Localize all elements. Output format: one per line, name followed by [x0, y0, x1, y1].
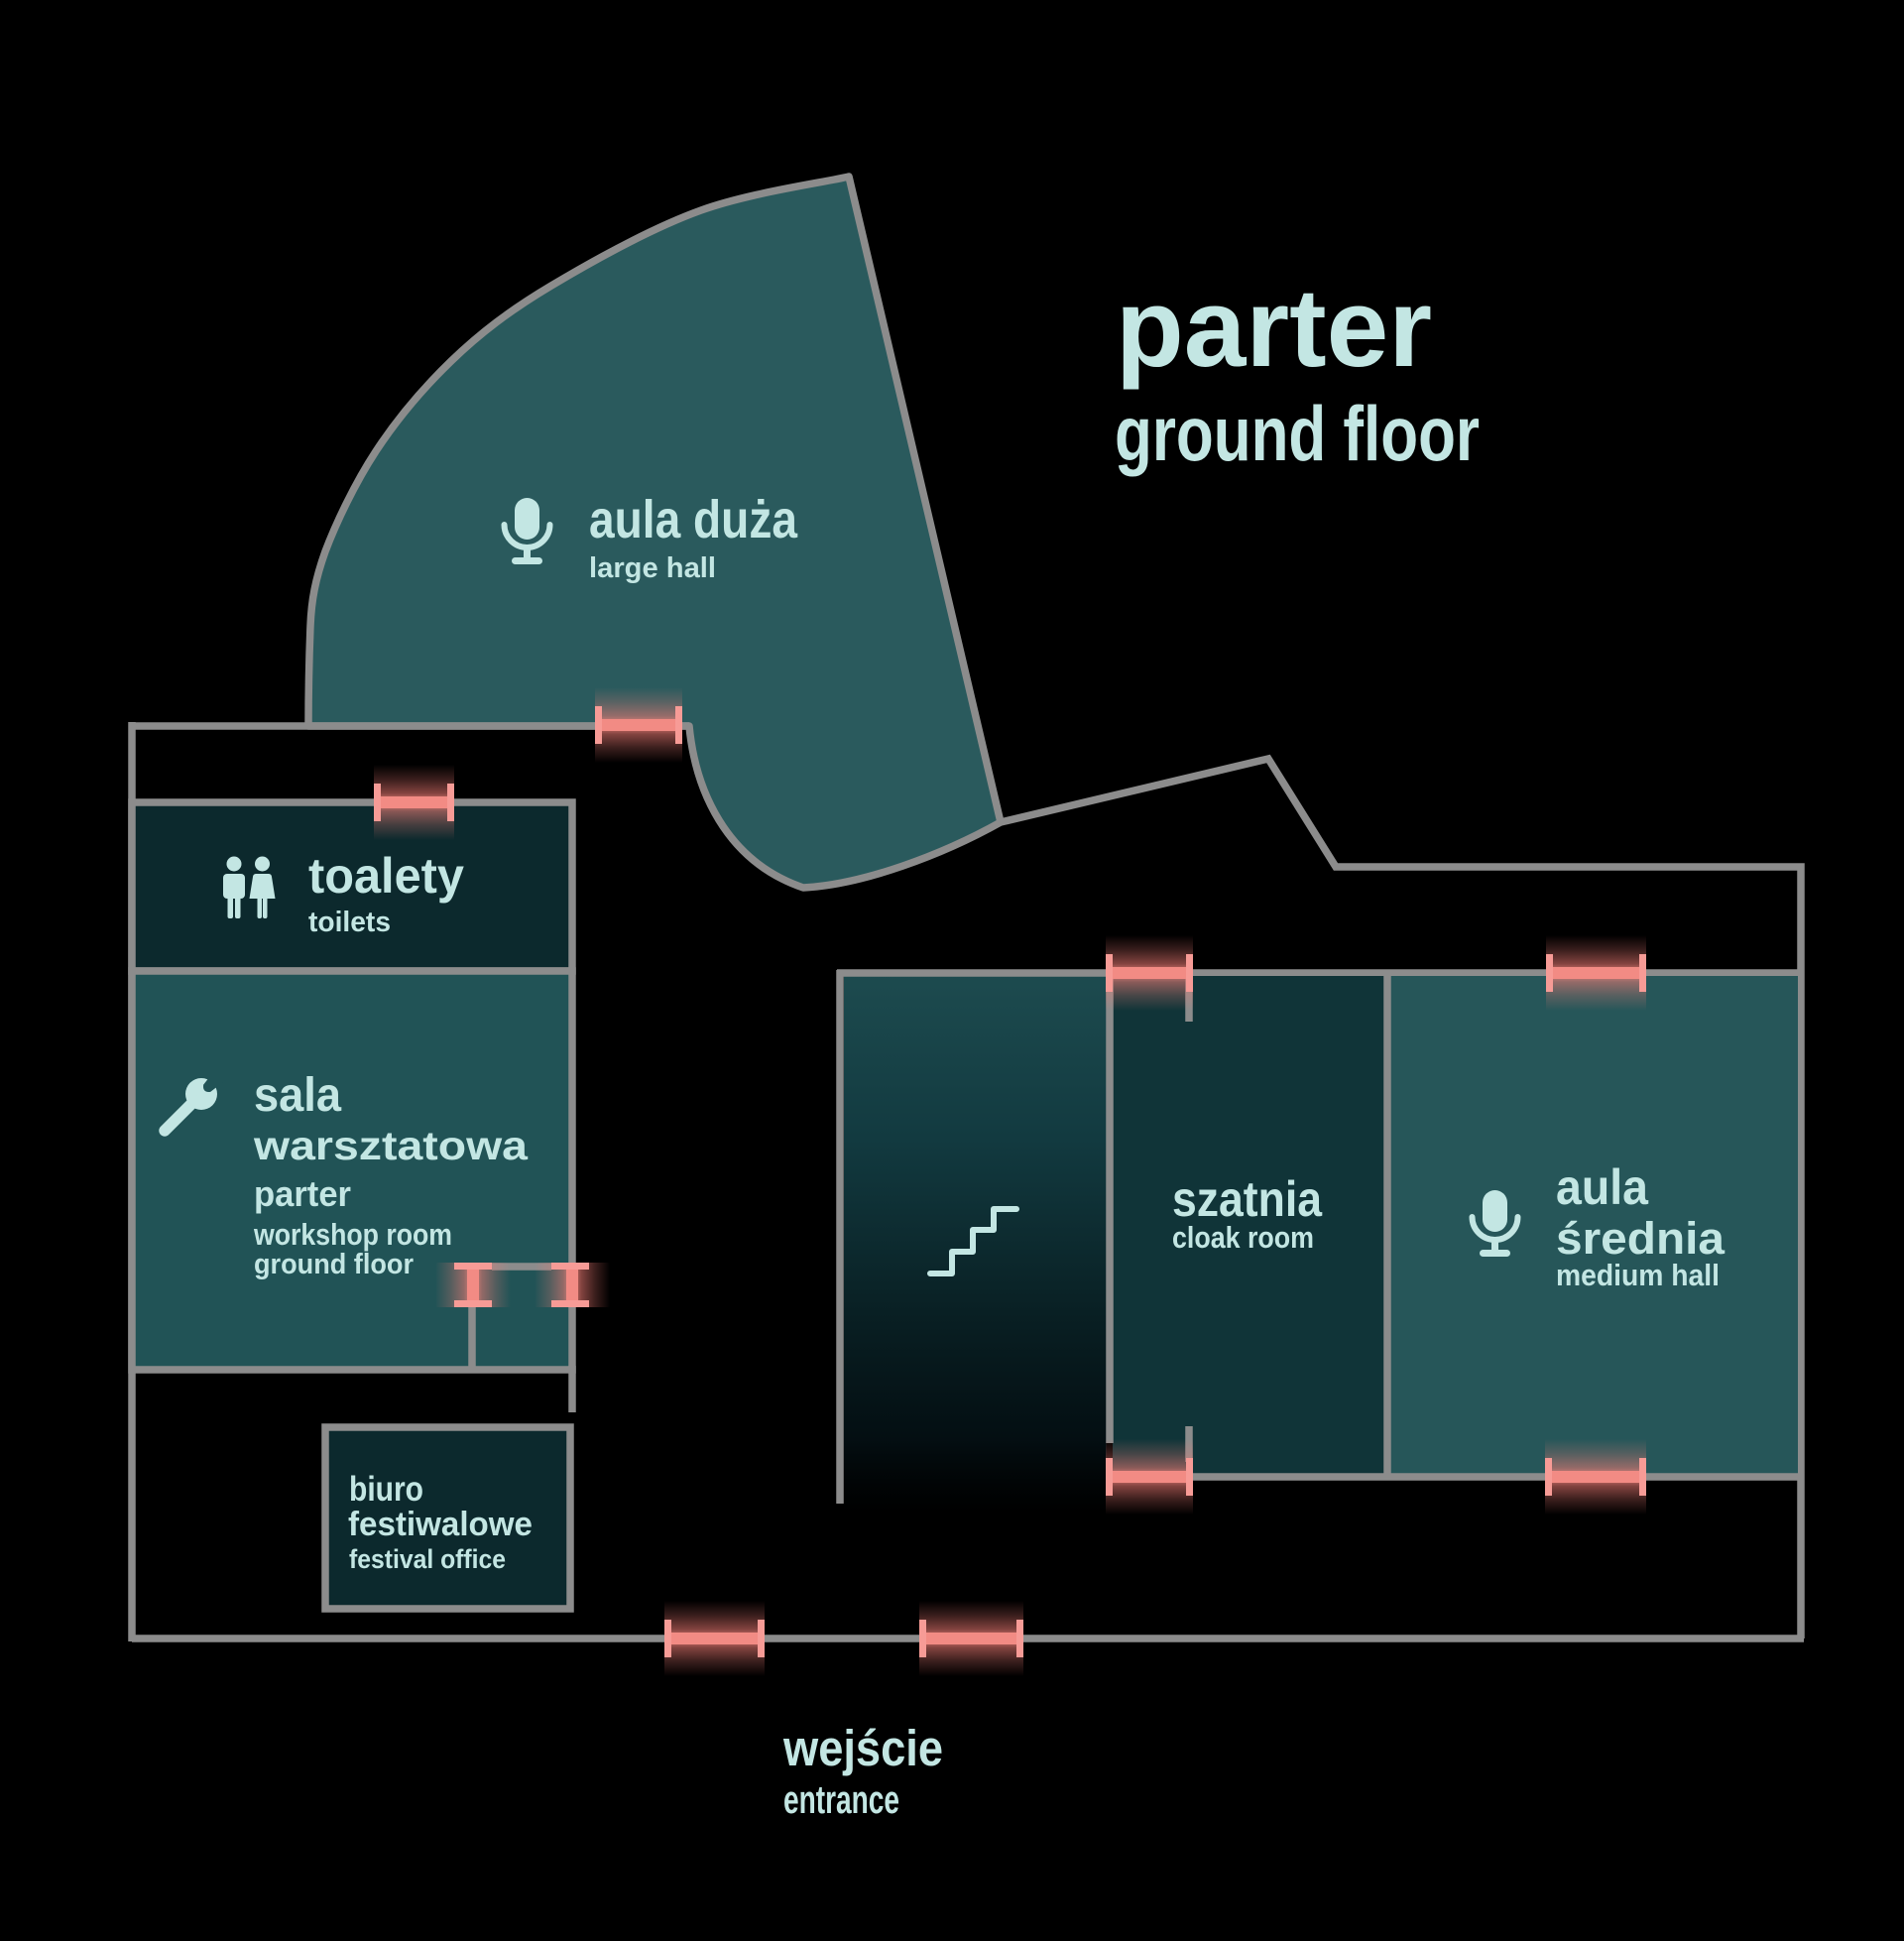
svg-text:aula duża: aula duża — [589, 490, 798, 549]
svg-text:parter: parter — [1116, 266, 1432, 390]
svg-text:ground floor: ground floor — [254, 1249, 414, 1280]
svg-text:biuro: biuro — [349, 1470, 423, 1509]
svg-text:parter: parter — [254, 1173, 351, 1214]
svg-text:średnia: średnia — [1556, 1213, 1725, 1264]
svg-text:ground floor: ground floor — [1115, 390, 1480, 477]
svg-text:sala: sala — [254, 1069, 341, 1122]
svg-text:warsztatowa: warsztatowa — [253, 1123, 529, 1168]
svg-text:large hall: large hall — [589, 552, 716, 584]
svg-text:medium hall: medium hall — [1556, 1258, 1720, 1292]
svg-text:cloak room: cloak room — [1172, 1220, 1314, 1255]
svg-text:festival office: festival office — [349, 1544, 506, 1574]
svg-text:festiwalowe: festiwalowe — [348, 1506, 533, 1543]
svg-text:workshop room: workshop room — [253, 1217, 452, 1252]
svg-text:toalety: toalety — [308, 848, 464, 904]
svg-text:wejście: wejście — [782, 1720, 943, 1776]
svg-text:szatnia: szatnia — [1172, 1171, 1323, 1227]
svg-text:aula: aula — [1556, 1159, 1649, 1215]
svg-text:toilets: toilets — [308, 907, 391, 938]
svg-text:entrance: entrance — [783, 1778, 899, 1822]
